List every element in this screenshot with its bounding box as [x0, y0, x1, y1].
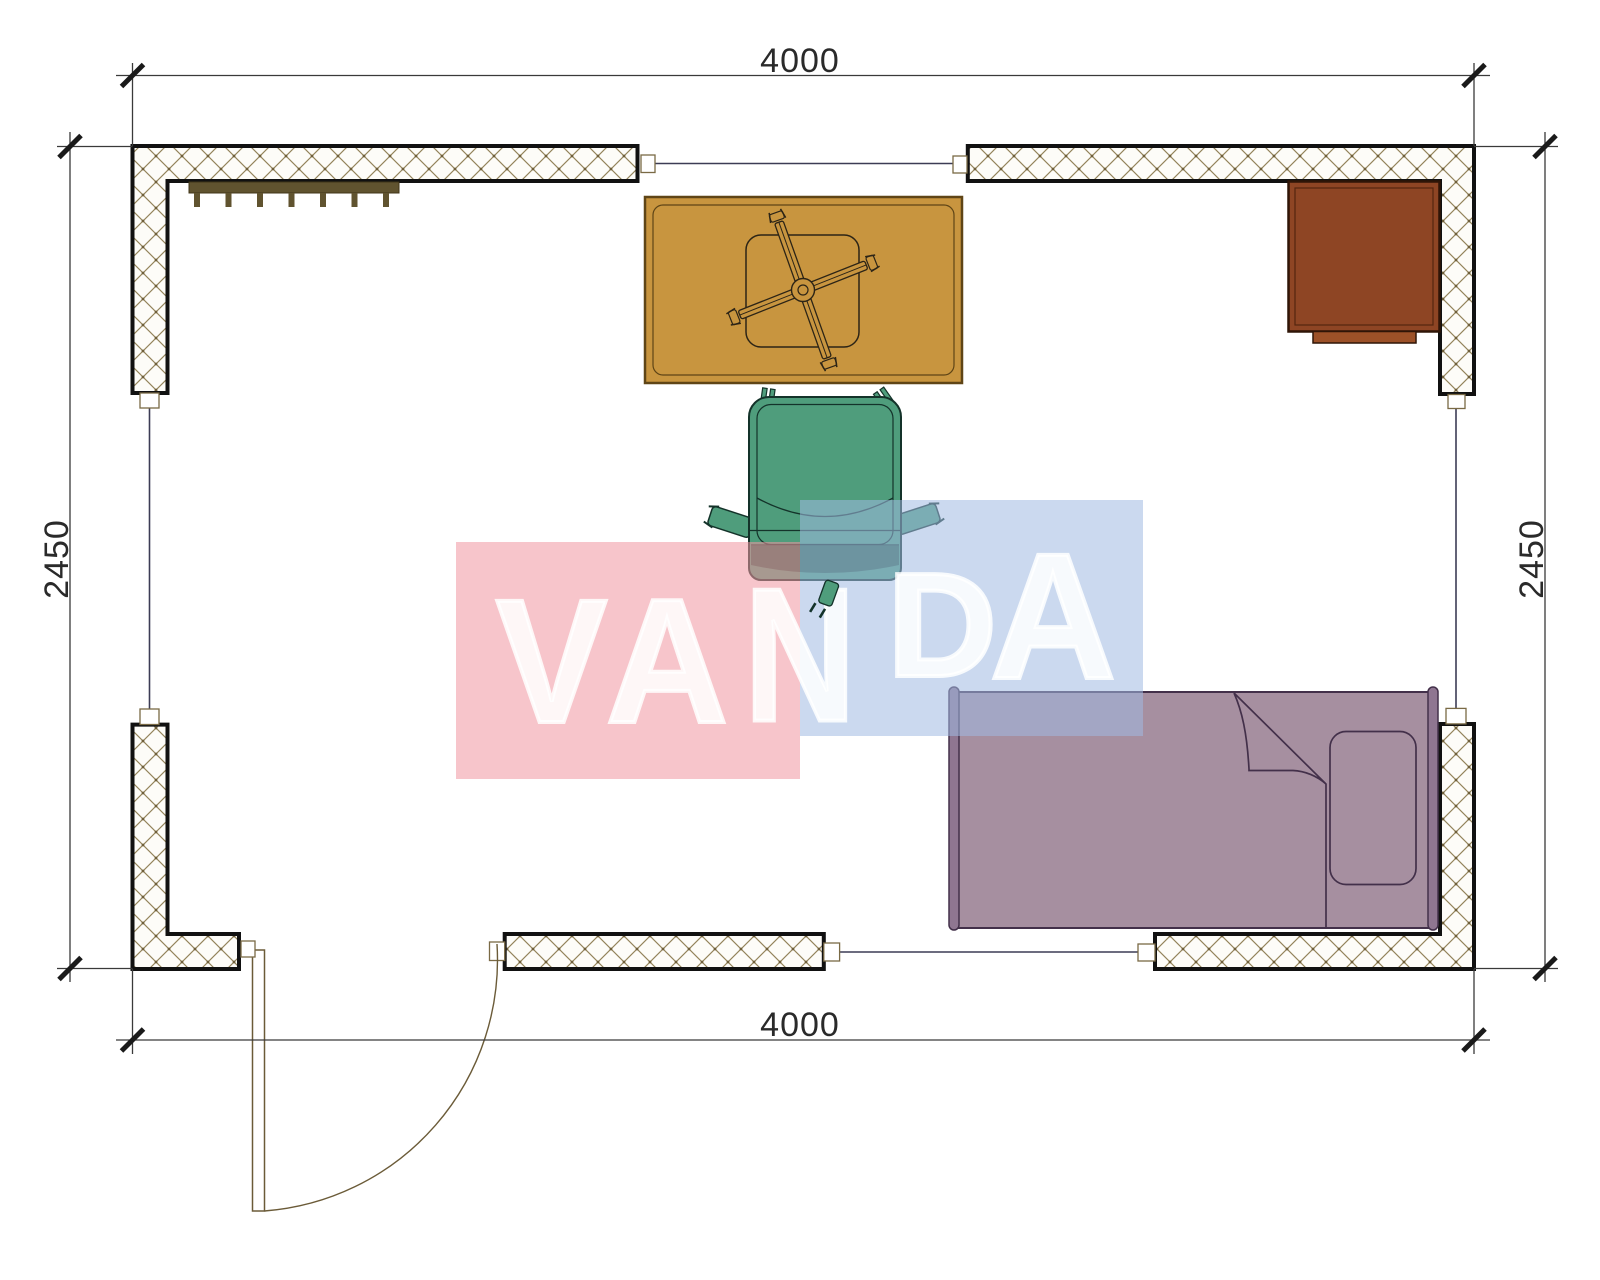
svg-text:D: D: [887, 543, 997, 708]
svg-text:A: A: [606, 562, 728, 760]
svg-text:A: A: [990, 516, 1116, 716]
svg-text:N: N: [744, 550, 856, 762]
svg-text:4000: 4000: [760, 42, 840, 80]
svg-text:2450: 2450: [1513, 519, 1551, 599]
svg-text:2450: 2450: [38, 519, 76, 599]
svg-text:4000: 4000: [760, 1006, 840, 1044]
svg-text:V: V: [496, 564, 607, 760]
